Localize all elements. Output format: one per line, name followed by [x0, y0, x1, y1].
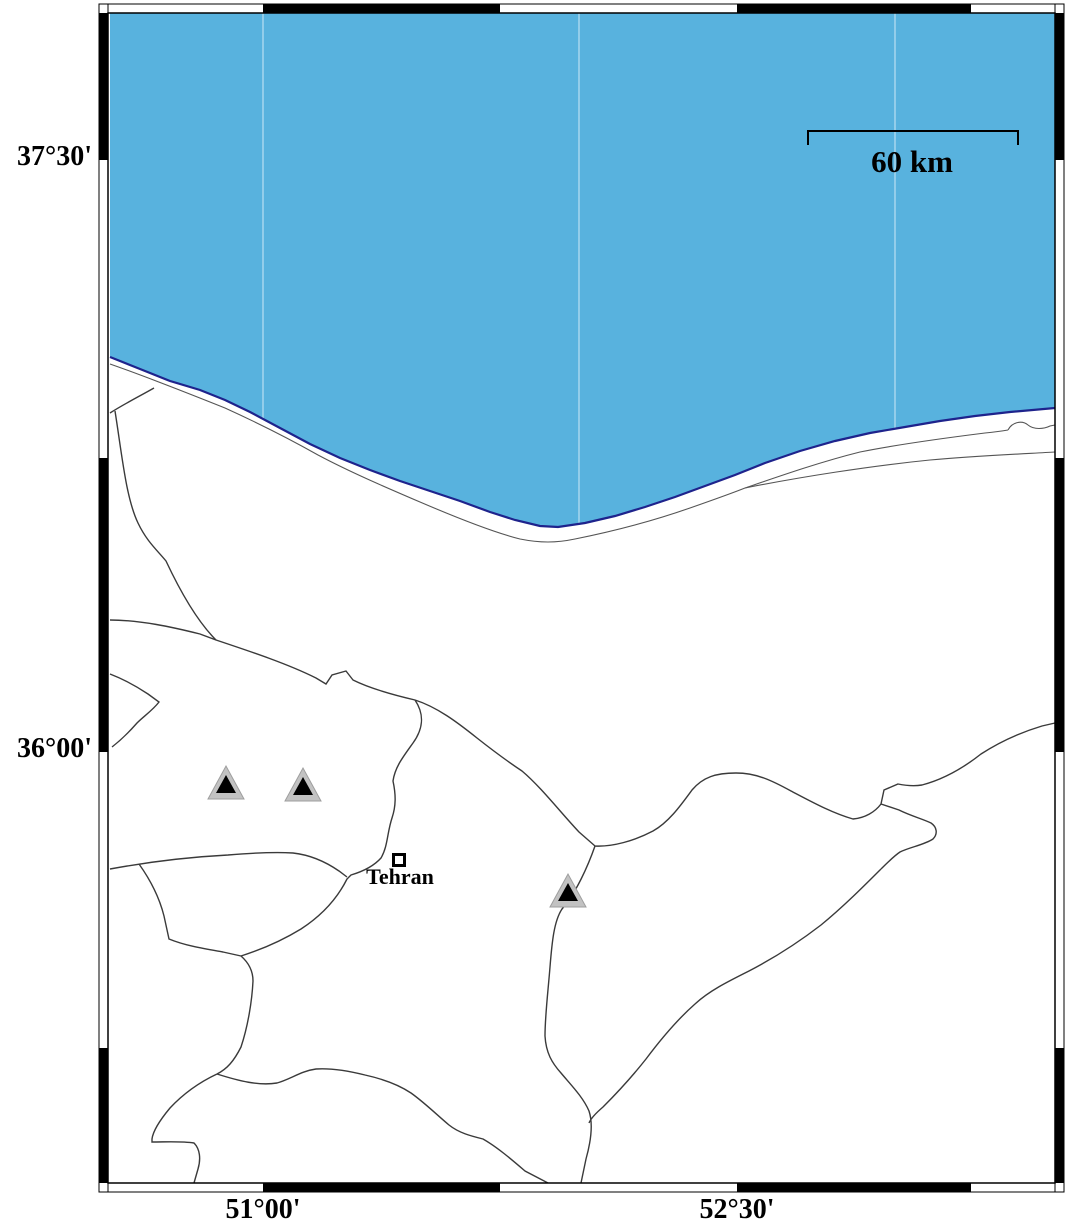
boundary-bottom-east — [217, 1069, 548, 1183]
boundary-branch-west — [110, 388, 154, 413]
frame-seg — [1055, 458, 1064, 752]
boundary-promontory — [881, 804, 936, 869]
boundary-southwest-descent — [217, 956, 253, 1074]
frame-seg — [737, 1183, 971, 1192]
boundary-fork-down — [139, 864, 241, 956]
city-label-tehran: Tehran — [320, 864, 480, 890]
frame-seg — [1055, 13, 1064, 160]
boundary-province-north — [415, 700, 1055, 846]
boundary-left-peninsula — [110, 674, 159, 747]
latitude-label-37-30: 37°30' — [0, 141, 92, 173]
boundary-bottom-boot — [152, 1074, 217, 1183]
coastline-hook — [1008, 422, 1055, 430]
frame-seg — [263, 1183, 500, 1192]
latitude-label-36-00: 36°00' — [0, 733, 92, 765]
longitude-label-51-00: 51°00' — [163, 1194, 363, 1226]
frame-seg — [737, 4, 971, 13]
frame-seg — [99, 13, 108, 160]
map-canvas — [0, 0, 1066, 1229]
boundary-enclave-west — [241, 700, 422, 956]
map-figure: 37°30' 36°00' 51°00' 52°30' 60 km Tehran — [0, 0, 1066, 1229]
caspian-sea-polygon — [110, 13, 1055, 527]
volcano-triangle-icon — [208, 766, 244, 799]
frame-seg — [99, 1048, 108, 1183]
volcano-triangle-icon — [285, 768, 321, 801]
boundary-long-diagonal — [589, 869, 881, 1123]
frame-seg — [99, 458, 108, 752]
frame-seg — [263, 4, 500, 13]
boundary-east-horizontal — [745, 452, 1055, 488]
scale-bar-label: 60 km — [812, 144, 1012, 180]
boundary-west-vertical — [115, 411, 216, 640]
longitude-label-52-30: 52°30' — [637, 1194, 837, 1226]
frame-seg — [1055, 1048, 1064, 1183]
